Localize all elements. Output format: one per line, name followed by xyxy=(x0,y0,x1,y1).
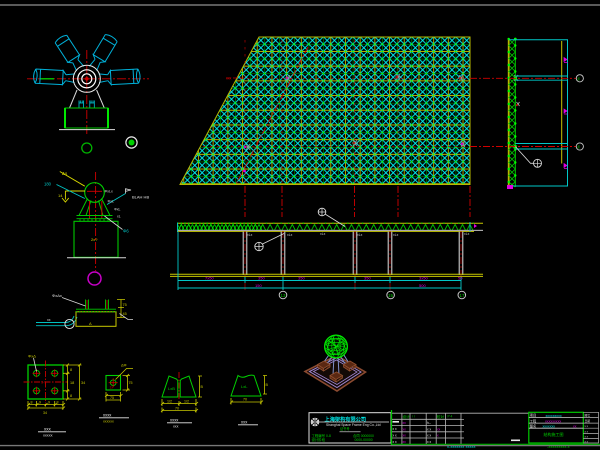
svg-text:il: il xyxy=(578,76,580,81)
svg-text:xxxxxxx: xxxxxxx xyxy=(543,425,556,429)
svg-text:日期: 日期 xyxy=(585,419,591,423)
svg-text:18: 18 xyxy=(70,381,74,385)
svg-text:xLx: xLx xyxy=(393,233,399,237)
svg-text:1/2: 1/2 xyxy=(167,400,172,404)
svg-text:8: 8 xyxy=(70,394,72,398)
svg-text:75: 75 xyxy=(123,303,127,307)
svg-text:3x50: 3x50 xyxy=(419,276,428,281)
svg-text:ΦxL: ΦxL xyxy=(108,200,115,204)
svg-text:8: 8 xyxy=(31,401,33,405)
svg-text:15: 15 xyxy=(388,293,394,298)
svg-text:xLx: xLx xyxy=(464,232,470,236)
svg-text:工程: 工程 xyxy=(530,418,537,423)
svg-text:70: 70 xyxy=(243,398,247,402)
svg-text:xxxx: xxxx xyxy=(170,418,179,423)
svg-text:xx: xx xyxy=(573,425,577,429)
svg-text:x x: x x xyxy=(585,429,589,433)
svg-text:LxL: LxL xyxy=(241,384,248,389)
svg-text:xxxxxxxxx: xxxxxxxxx xyxy=(545,419,561,423)
svg-text:9: 9 xyxy=(48,401,50,405)
svg-text:结构施工图: 结构施工图 xyxy=(544,431,564,437)
svg-text:h--: h-- xyxy=(427,421,431,425)
svg-text:xx: xx xyxy=(403,427,407,431)
svg-text:LxB: LxB xyxy=(168,386,175,391)
svg-text:Shanghai Space Frame Eng Co.,L: Shanghai Space Frame Eng Co.,Ltd xyxy=(326,423,381,427)
svg-text:设计: 设计 xyxy=(403,414,411,419)
svg-text:75: 75 xyxy=(110,396,114,400)
svg-text:ΦxL: ΦxL xyxy=(114,208,121,212)
svg-text:14: 14 xyxy=(58,193,63,198)
svg-text:350: 350 xyxy=(258,276,265,281)
svg-text:项目: 项目 xyxy=(530,414,536,418)
svg-text:校对: 校对 xyxy=(437,414,445,419)
svg-text:xxxxxxxxx: xxxxxxxxx xyxy=(546,414,562,418)
svg-text:180: 180 xyxy=(44,182,52,187)
svg-text:图名: 图名 xyxy=(530,424,536,429)
svg-text:BLAH HB: BLAH HB xyxy=(132,195,149,200)
svg-text:8: 8 xyxy=(70,368,72,372)
svg-text:ΔΦ: ΔΦ xyxy=(121,364,127,368)
svg-text:xx: xx xyxy=(47,318,51,322)
svg-text:1-1: 1-1 xyxy=(41,381,46,385)
svg-text:350: 350 xyxy=(298,276,305,281)
svg-text:xLx: xLx xyxy=(247,233,253,237)
svg-text:xxx: xxx xyxy=(173,425,179,429)
svg-text:34: 34 xyxy=(43,411,47,415)
svg-text:45: 45 xyxy=(123,312,127,316)
svg-text:xx: xx xyxy=(437,427,441,431)
svg-text:x x: x x xyxy=(427,440,431,444)
svg-text:xxx: xxx xyxy=(44,427,52,432)
svg-text:xxxx: xxxx xyxy=(103,413,112,418)
svg-text:500: 500 xyxy=(419,283,426,288)
svg-text:xL: xL xyxy=(117,215,121,219)
svg-text:xxxxx: xxxxx xyxy=(43,434,53,438)
svg-text:xxx: xxx xyxy=(241,420,248,425)
svg-text:x x: x x xyxy=(393,434,397,438)
svg-text:2x?: 2x? xyxy=(91,237,98,242)
svg-text:13: 13 xyxy=(281,293,287,298)
svg-text:x x: x x xyxy=(393,427,397,431)
svg-text:证书号: 证书号 xyxy=(340,426,350,431)
svg-text:x x: x x xyxy=(427,434,431,438)
svg-text:A: A xyxy=(89,321,92,326)
svg-text:150: 150 xyxy=(255,283,262,288)
svg-text:设计阶段: 设计阶段 xyxy=(312,437,326,442)
svg-text:70: 70 xyxy=(175,407,179,411)
svg-text:17: 17 xyxy=(460,293,466,298)
svg-text:x x: x x xyxy=(585,424,589,428)
svg-text:xx: xx xyxy=(403,421,407,425)
svg-text:Φ6: Φ6 xyxy=(123,229,129,234)
svg-text:0000-00000: 0000-00000 xyxy=(355,438,373,442)
svg-text:x-xxxxxxx xxxxx: x-xxxxxxx xxxxx xyxy=(447,444,475,449)
svg-text:Δs: Δs xyxy=(62,171,68,176)
svg-text:i i: i i xyxy=(413,415,416,419)
svg-text:xx: xx xyxy=(403,434,407,438)
svg-text:il: il xyxy=(578,145,580,150)
svg-text:xLx: xLx xyxy=(287,233,293,237)
svg-text:1x: 1x xyxy=(110,386,114,390)
svg-text:75: 75 xyxy=(129,381,133,385)
svg-text:xxx: xxx xyxy=(226,77,232,81)
svg-text:x x: x x xyxy=(585,439,589,443)
svg-text:xxxxxx: xxxxxx xyxy=(103,420,114,424)
svg-text:图号: 图号 xyxy=(585,413,591,417)
svg-text:xLx: xLx xyxy=(357,233,363,237)
svg-text:34: 34 xyxy=(81,381,85,385)
svg-text:x x: x x xyxy=(427,427,431,431)
svg-text:350: 350 xyxy=(364,276,371,281)
svg-text:1/2: 1/2 xyxy=(184,400,189,404)
svg-text:8: 8 xyxy=(57,401,59,405)
svg-text:x x: x x xyxy=(585,434,589,438)
svg-text:ΦxLx: ΦxLx xyxy=(105,190,113,194)
svg-text:50: 50 xyxy=(458,276,463,281)
svg-text:7x50: 7x50 xyxy=(205,276,214,281)
svg-text:xLx: xLx xyxy=(320,232,326,236)
svg-text:x x: x x xyxy=(393,440,397,444)
svg-text:-xxxxxxxxx-x: -xxxxxxxxx-x xyxy=(547,444,570,449)
svg-text:9: 9 xyxy=(39,401,41,405)
svg-text:P 4: P 4 xyxy=(448,415,453,419)
svg-text:ΦxΔ: ΦxΔ xyxy=(28,354,36,359)
svg-text:xx: xx xyxy=(403,440,407,444)
svg-text:ΦxΔx: ΦxΔx xyxy=(52,293,62,298)
